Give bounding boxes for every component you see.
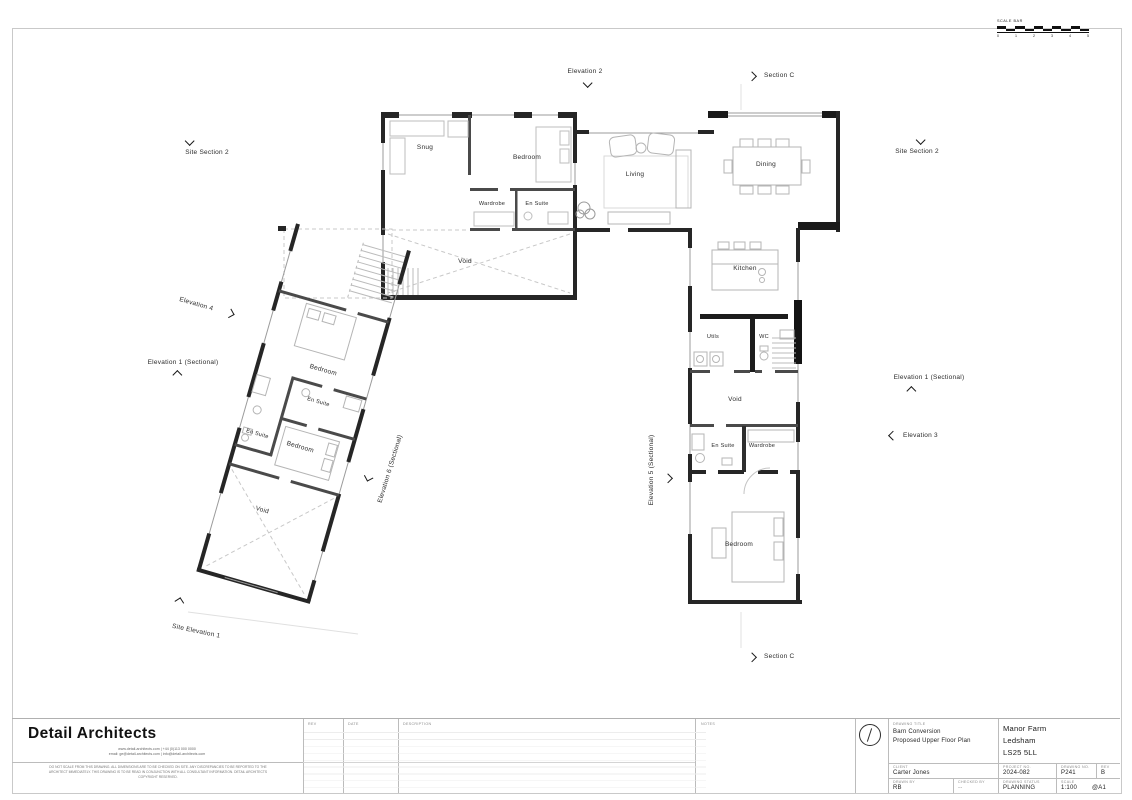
main-bar-east xyxy=(573,111,840,232)
room-label-wardrobe-main: Wardrobe xyxy=(479,202,505,208)
checked-by-label: CHECKED BY xyxy=(958,780,985,784)
bedroom-right-furniture xyxy=(712,468,784,582)
stairs-right-wing xyxy=(772,338,796,368)
marker-elevation5: Elevation 5 (Sectional) xyxy=(649,435,656,506)
rev-value: B xyxy=(1101,770,1105,776)
scale-value: 1:100 xyxy=(1061,785,1077,791)
left-wing xyxy=(196,219,411,604)
room-label-kitchen: Kitchen xyxy=(733,266,756,273)
firm-contact-line2: email: ge@detail-architects.com | info@d… xyxy=(22,752,292,757)
drawing-title-line1: Barn Conversion xyxy=(893,729,941,735)
floor-plan xyxy=(0,0,1132,800)
paper-size-value: @A1 xyxy=(1092,785,1106,791)
rev-header: REV xyxy=(308,722,316,726)
scale-bar-label: SCALE BAR xyxy=(997,19,1089,23)
room-label-snug: Snug xyxy=(417,145,433,152)
notes-header: NOTES xyxy=(701,722,715,726)
stairs-left-wing xyxy=(347,243,405,311)
scale-bar: SCALE BAR 0 1 2 3 4 5 xyxy=(997,19,1089,38)
drawing-no-value: P241 xyxy=(1061,770,1076,776)
drawing-title-line2: Proposed Upper Floor Plan xyxy=(893,738,971,744)
tick: 4 xyxy=(1069,34,1071,38)
project-no-value: 2024-082 xyxy=(1003,770,1030,776)
address-line1: Manor Farm xyxy=(1003,723,1046,735)
status-label: DRAWING STATUS xyxy=(1003,780,1040,784)
scale-label: SCALE xyxy=(1061,780,1075,784)
drawing-title-label: DRAWING TITLE xyxy=(893,722,926,726)
tick: 5 xyxy=(1087,34,1089,38)
room-label-wc: WC xyxy=(759,335,769,341)
scale-bar-segments xyxy=(997,26,1089,33)
tick: 3 xyxy=(1051,34,1053,38)
left-wing-furniture xyxy=(234,296,383,483)
description-header: DESCRIPTION xyxy=(403,722,431,726)
drawn-by-label: DRAWN BY xyxy=(893,780,915,784)
drawing-no-label: DRAWING NO. xyxy=(1061,765,1089,769)
marker-siteSection2-right: Site Section 2 xyxy=(895,149,939,156)
firm-name: Detail Architects xyxy=(28,725,157,743)
client-label: CLIENT xyxy=(893,765,908,769)
drawing-sheet: Snug Bedroom Wardrobe En Suite Void Livi… xyxy=(0,0,1132,800)
marker-elevation3: Elevation 3 xyxy=(903,433,938,440)
section-lines xyxy=(188,84,741,648)
tick: 2 xyxy=(1033,34,1035,38)
room-label-void-main: Void xyxy=(458,259,472,266)
marker-elevation1-left: Elevation 1 (Sectional) xyxy=(148,360,219,367)
address-line2: Ledsham xyxy=(1003,735,1046,747)
address-line3: LS25 5LL xyxy=(1003,747,1046,759)
drawn-by-value: RB xyxy=(893,785,902,791)
marker-elevation2: Elevation 2 xyxy=(568,69,603,76)
date-header: DATE xyxy=(348,722,359,726)
scale-bar-ticks: 0 1 2 3 4 5 xyxy=(997,34,1089,38)
project-no-label: PROJECT NO. xyxy=(1003,765,1031,769)
room-label-bedroom-main: Bedroom xyxy=(513,155,541,162)
revision-rows xyxy=(304,726,706,792)
title-block: Detail Architects www.detail-architects.… xyxy=(12,718,1120,793)
marker-sectionC-bottom: Section C xyxy=(764,654,794,661)
marker-sectionC-top: Section C xyxy=(764,73,794,80)
room-label-ensuite-right: En Suite xyxy=(711,444,734,450)
status-value: PLANNING xyxy=(1003,785,1035,791)
project-address: Manor Farm Ledsham LS25 5LL xyxy=(1003,723,1046,758)
room-label-living: Living xyxy=(626,172,644,179)
rev-label: REV xyxy=(1101,765,1109,769)
marker-elevation1-right: Elevation 1 (Sectional) xyxy=(894,375,965,382)
room-label-void-right: Void xyxy=(728,397,742,404)
checked-by-value: -- xyxy=(958,785,962,791)
room-label-ensuite-main: En Suite xyxy=(525,202,548,208)
room-label-utils: Utils xyxy=(707,335,719,341)
tick: 1 xyxy=(1015,34,1017,38)
room-label-bedroom-right: Bedroom xyxy=(725,542,753,549)
room-label-wardrobe-right: Wardrobe xyxy=(749,444,775,450)
client-value: Carter Jones xyxy=(893,770,930,776)
tick: 0 xyxy=(997,34,999,38)
firm-logo-icon xyxy=(859,724,881,746)
firm-contact: www.detail-architects.com | +44 (0)113 0… xyxy=(22,747,292,758)
disclaimer: DO NOT SCALE FROM THIS DRAWING. ALL DIME… xyxy=(40,765,276,779)
room-label-dining: Dining xyxy=(756,162,776,169)
marker-siteSection2-left: Site Section 2 xyxy=(185,150,229,157)
furniture-bedroom-main xyxy=(474,127,571,226)
